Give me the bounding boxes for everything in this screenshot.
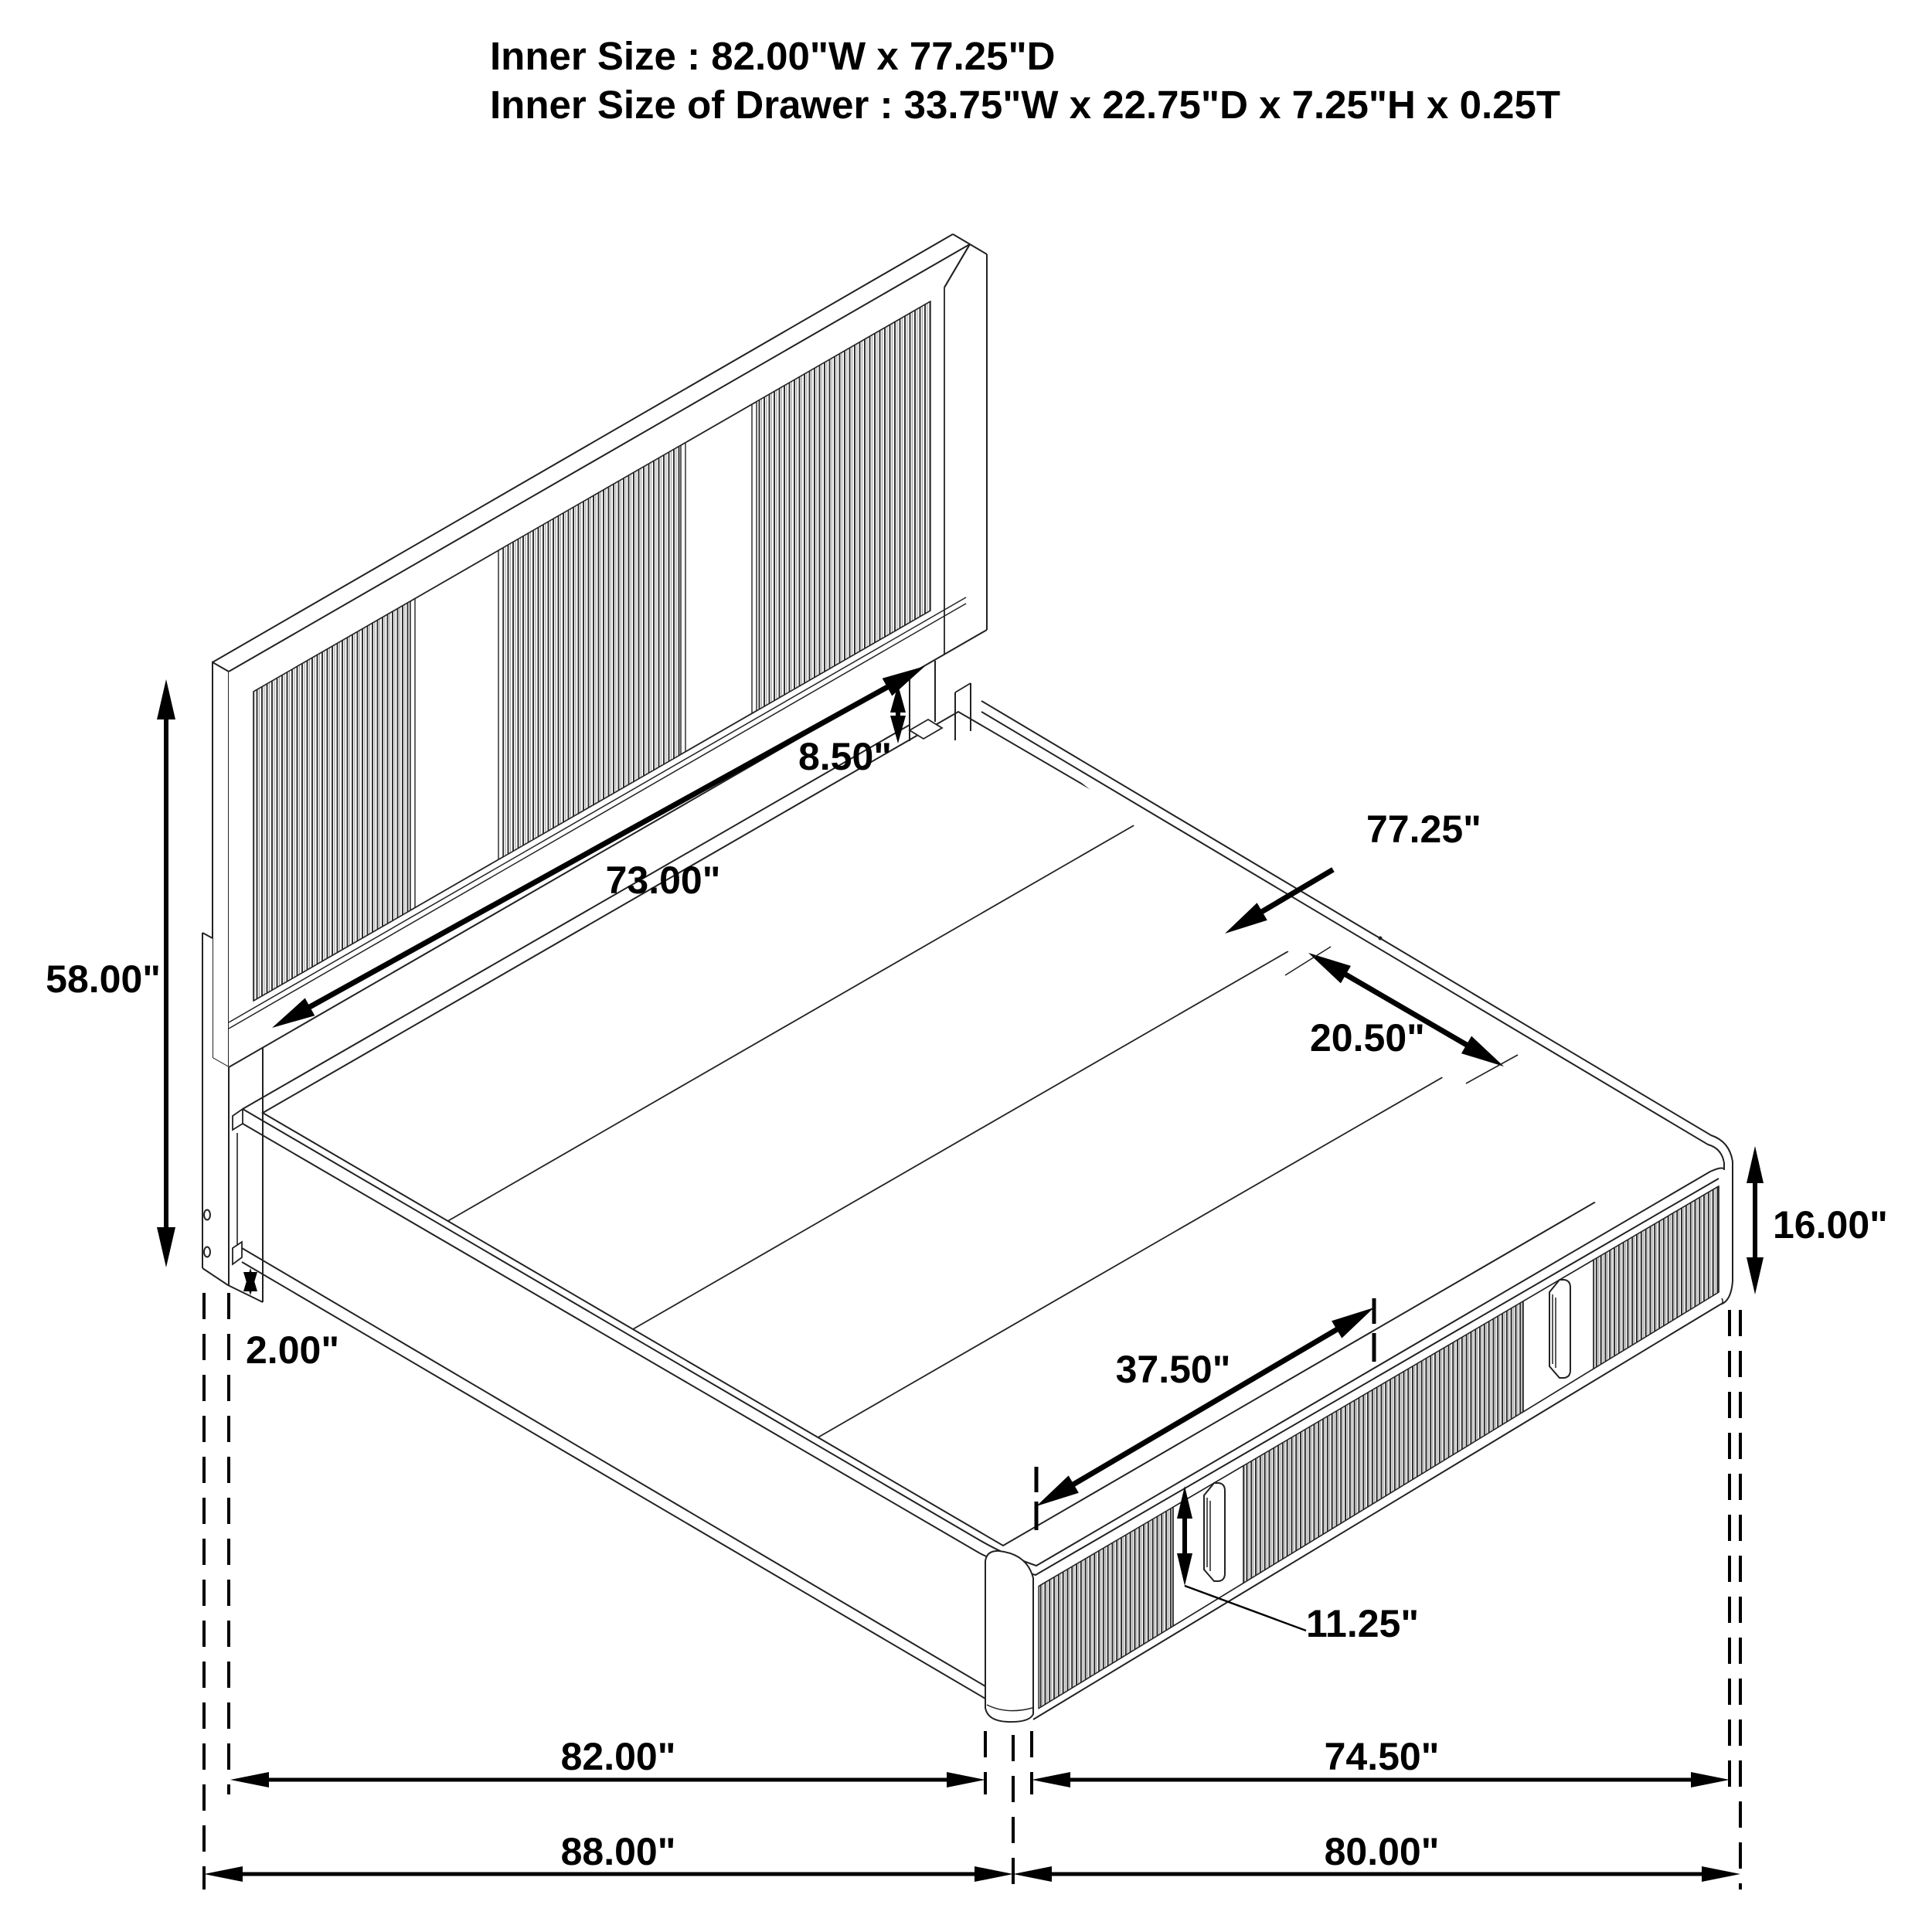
svg-text:8.50": 8.50": [798, 735, 892, 778]
svg-text:58.00": 58.00": [46, 957, 161, 1001]
svg-text:Inner Size of Drawer : 33.75"W: Inner Size of Drawer : 33.75"W x 22.75"D…: [490, 83, 1560, 127]
svg-text:11.25": 11.25": [1306, 1602, 1419, 1645]
svg-text:37.50": 37.50": [1116, 1348, 1231, 1391]
svg-text:82.00": 82.00": [561, 1735, 676, 1778]
svg-text:74.50": 74.50": [1325, 1735, 1440, 1778]
svg-text:80.00": 80.00": [1325, 1830, 1440, 1873]
svg-text:20.50": 20.50": [1310, 1016, 1425, 1060]
svg-text:77.25": 77.25": [1366, 808, 1481, 851]
svg-text:Inner Size : 82.00"W x 77.25"D: Inner Size : 82.00"W x 77.25"D: [490, 34, 1056, 78]
svg-text:2.00": 2.00": [246, 1328, 339, 1372]
svg-text:73.00": 73.00": [606, 859, 721, 902]
svg-text:16.00": 16.00": [1773, 1203, 1888, 1247]
svg-text:88.00": 88.00": [561, 1830, 676, 1873]
